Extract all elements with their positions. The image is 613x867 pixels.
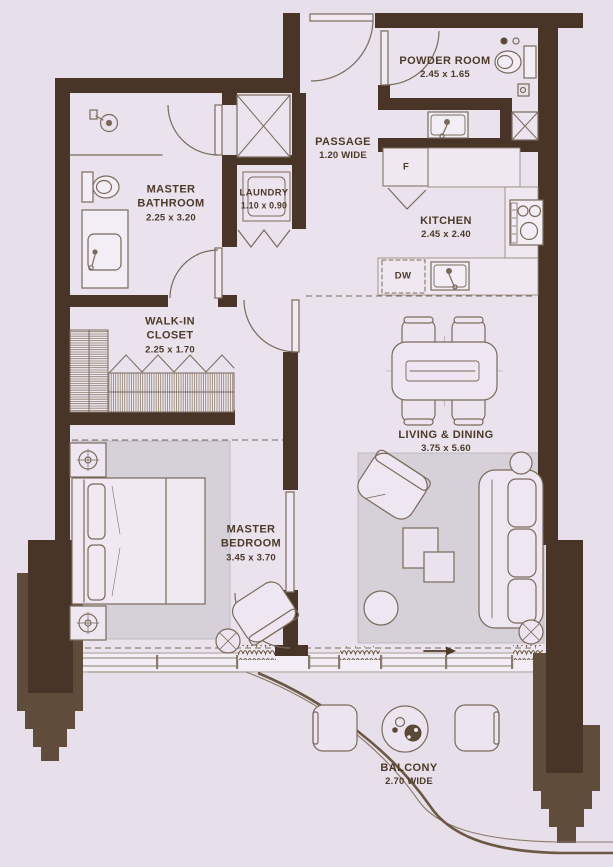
pouf-icon	[364, 591, 398, 625]
basin-icon	[428, 112, 468, 138]
kitchen-sink-icon	[431, 262, 469, 290]
room-label-powder-room: POWDER ROOM 2.45 x 1.65	[399, 54, 490, 80]
room-label-kitchen: KITCHEN 2.45 x 2.40	[420, 214, 472, 240]
room-name: PASSAGE	[315, 135, 371, 149]
room-name: POWDER ROOM	[399, 54, 490, 68]
nightstand-lamp-icon-2	[70, 606, 106, 640]
fridge-label: F	[403, 162, 409, 173]
duct-shaft-small-icon	[512, 112, 538, 140]
bedroom-plant-icon	[216, 629, 240, 653]
balcony-table-icon	[382, 706, 428, 752]
balcony-chair-icon-right	[455, 705, 499, 751]
room-label-laundry: LAUNDRY 1.10 x 0.90	[240, 187, 289, 210]
room-dims: 2.45 x 2.40	[420, 229, 472, 240]
room-dims: 3.75 x 5.60	[398, 443, 493, 454]
room-dims: 2.25 x 3.20	[137, 212, 204, 223]
room-dims: 1.10 x 0.90	[240, 201, 289, 211]
nightstand-lamp-icon	[70, 443, 106, 477]
bed-icon	[72, 478, 205, 604]
dishwasher-label: DW	[395, 271, 411, 282]
room-name: LAUNDRY	[240, 187, 289, 199]
room-label-living-dining: LIVING & DINING 3.75 x 5.60	[398, 428, 493, 454]
room-label-passage: PASSAGE 1.20 WIDE	[315, 135, 371, 161]
room-dims: 3.45 x 3.70	[221, 552, 281, 563]
vanity-sink-icon	[82, 210, 128, 288]
plant-icon-top	[510, 452, 532, 474]
room-name: BALCONY	[380, 761, 437, 775]
room-name: MASTER BEDROOM	[221, 523, 281, 552]
room-name: LIVING & DINING	[398, 428, 493, 442]
room-dims: 2.70 WIDE	[380, 776, 437, 787]
room-name: MASTER BATHROOM	[137, 183, 204, 212]
sofa-icon	[479, 470, 543, 628]
room-name: WALK-IN CLOSET	[145, 315, 195, 344]
room-name: KITCHEN	[420, 214, 472, 228]
room-label-master-bedroom: MASTER BEDROOM 3.45 x 3.70	[221, 523, 281, 564]
room-dims: 1.20 WIDE	[315, 150, 371, 161]
room-label-balcony: BALCONY 2.70 WIDE	[380, 761, 437, 787]
balcony-chair-icon-left	[313, 705, 357, 751]
room-label-walk-in-closet: WALK-IN CLOSET 2.25 x 1.70	[145, 315, 195, 356]
duct-shaft-icon	[237, 95, 290, 157]
room-dims: 2.45 x 1.65	[399, 69, 490, 80]
plant-icon-bottom	[519, 620, 543, 644]
floorplan-canvas: POWDER ROOM 2.45 x 1.65 PASSAGE 1.20 WID…	[0, 0, 613, 867]
floorplan-drawing	[0, 0, 613, 867]
stove-icon	[510, 200, 543, 245]
room-dims: 2.25 x 1.70	[145, 344, 195, 355]
room-label-master-bathroom: MASTER BATHROOM 2.25 x 3.20	[137, 183, 204, 224]
